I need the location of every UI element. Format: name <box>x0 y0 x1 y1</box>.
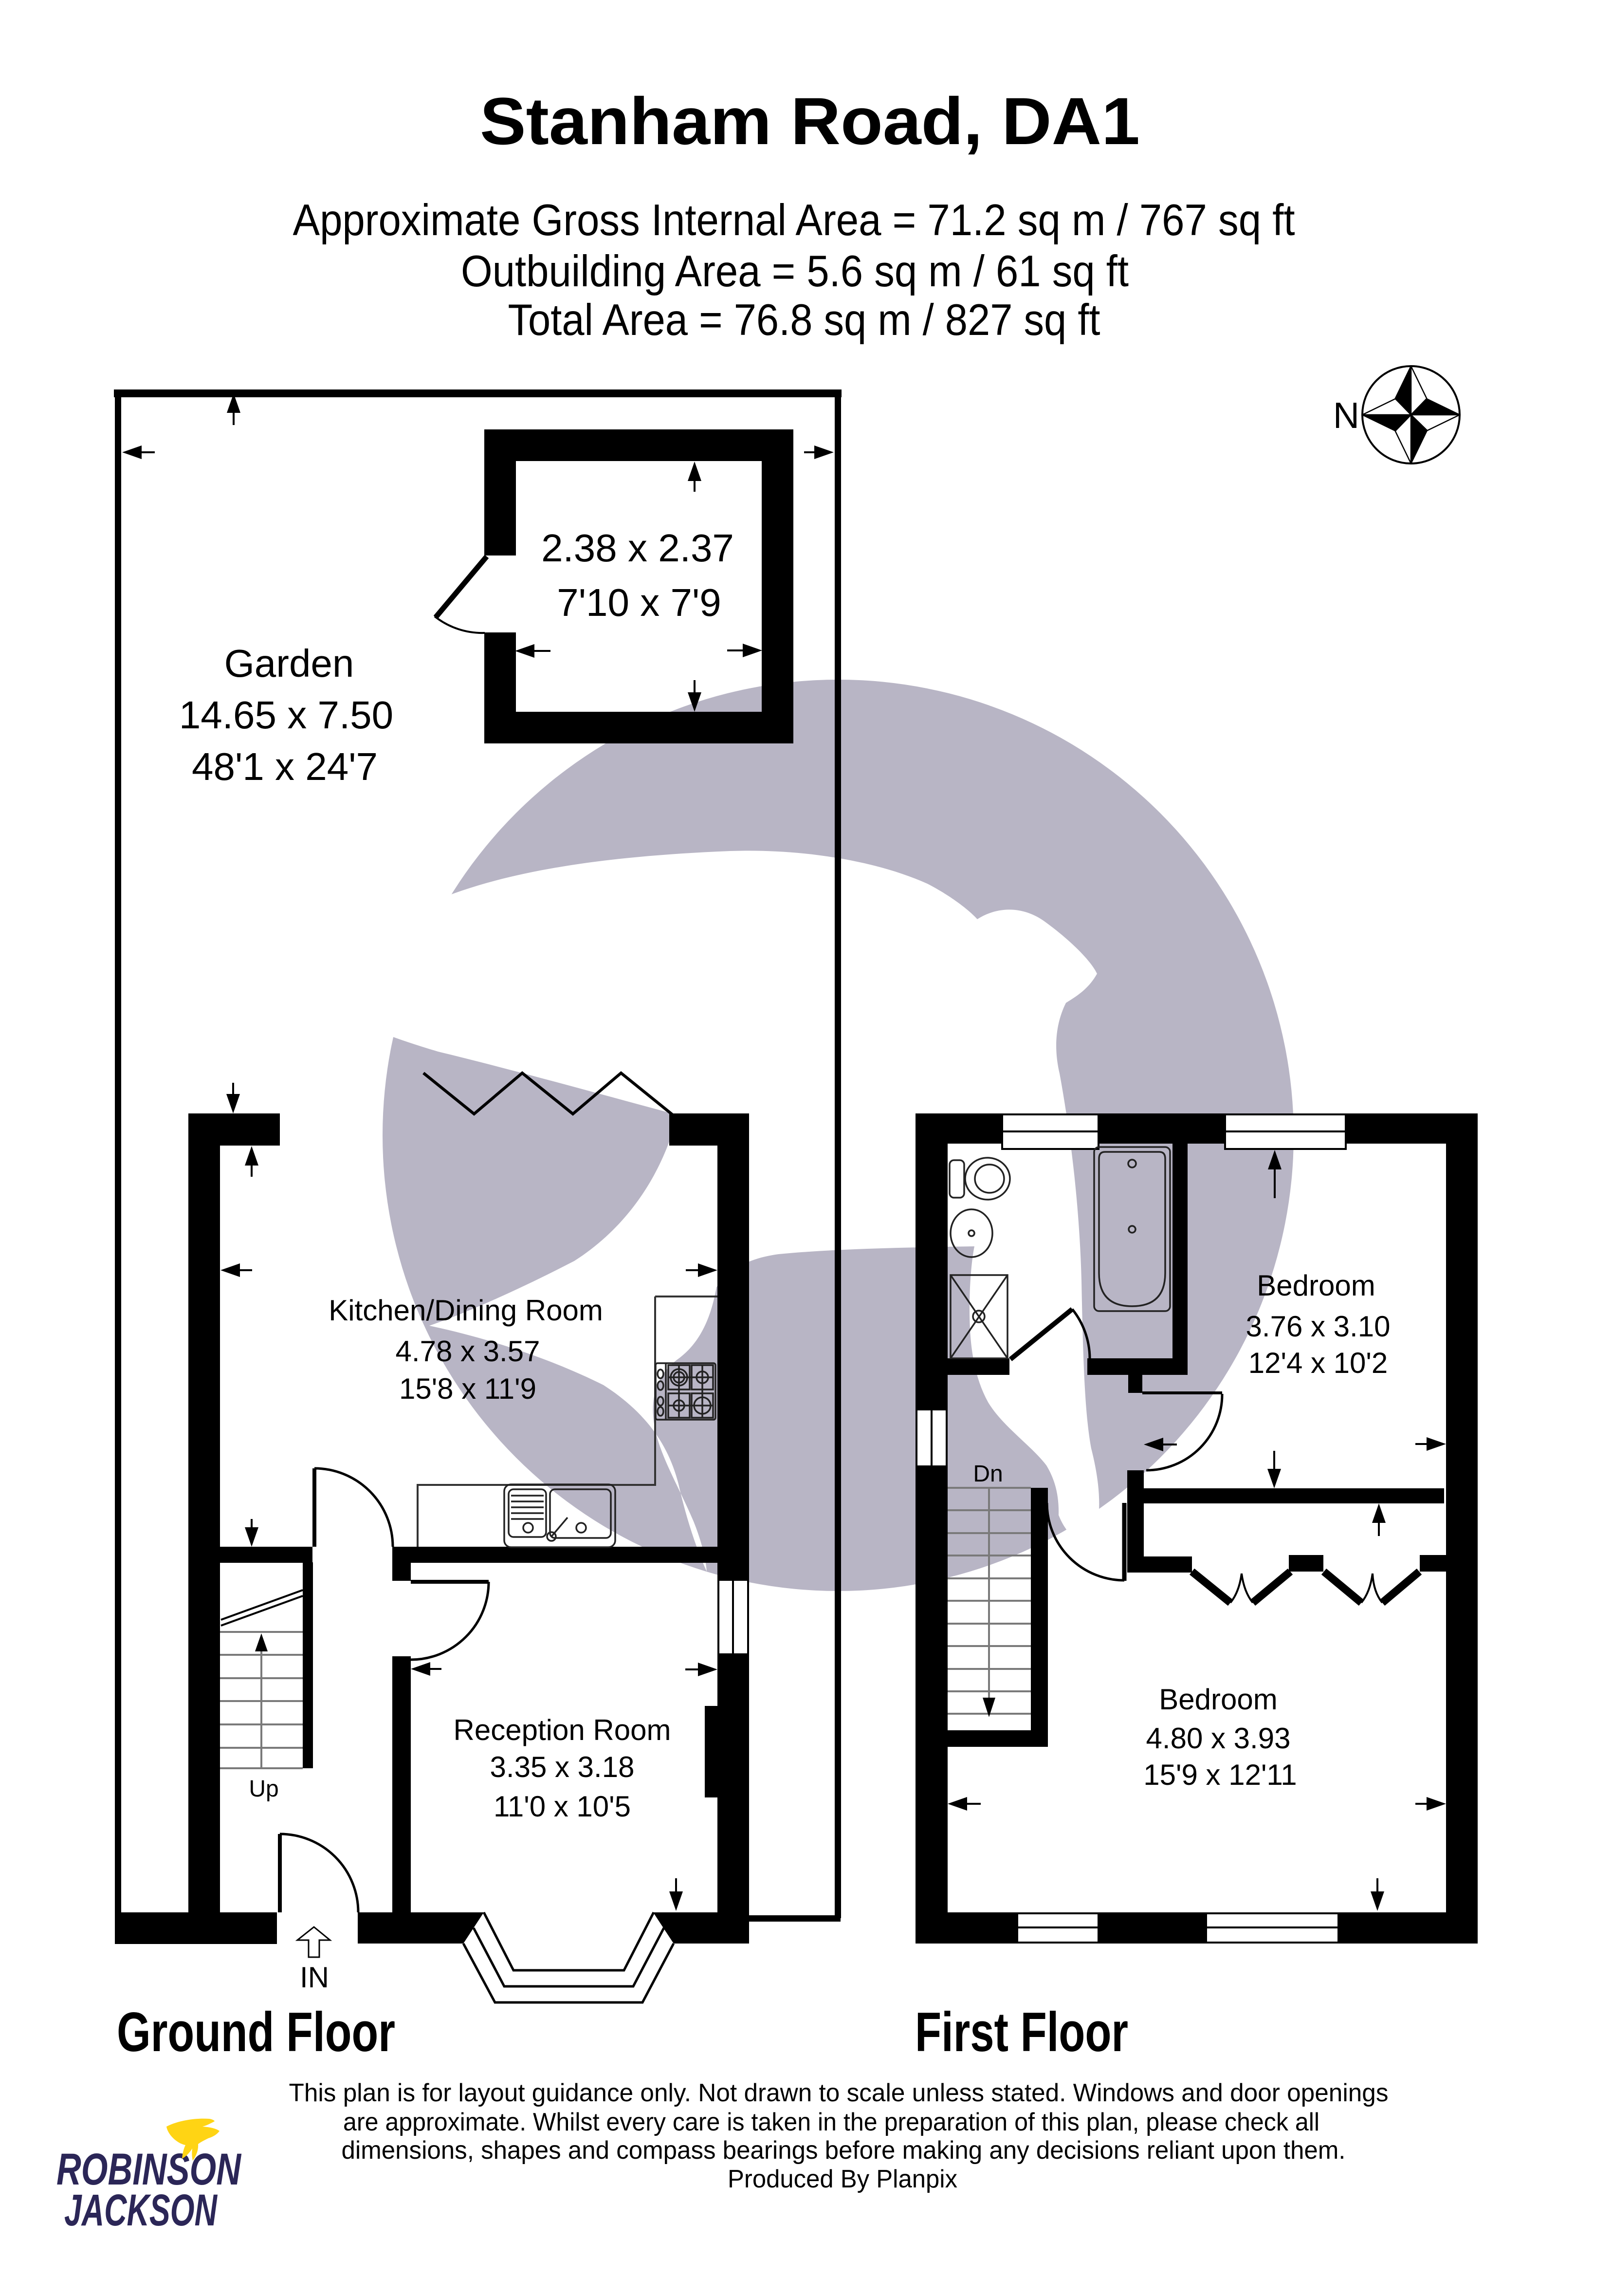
svg-text:This plan is for layout guidan: This plan is for layout guidance only. N… <box>289 2079 1389 2107</box>
svg-text:15'9 x 12'11: 15'9 x 12'11 <box>1143 1759 1297 1791</box>
svg-text:Bedroom: Bedroom <box>1257 1269 1375 1302</box>
svg-text:Kitchen/Dining Room: Kitchen/Dining Room <box>329 1294 603 1327</box>
svg-text:Garden: Garden <box>224 642 354 685</box>
svg-text:3.35 x 3.18: 3.35 x 3.18 <box>490 1751 635 1783</box>
svg-text:Up: Up <box>249 1776 278 1802</box>
svg-text:Total Area = 76.8 sq m / 827 s: Total Area = 76.8 sq m / 827 sq ft <box>508 296 1100 345</box>
svg-text:Outbuilding Area = 5.6 sq m /: Outbuilding Area = 5.6 sq m / 61 sq ft <box>461 247 1129 296</box>
svg-text:7'10 x 7'9: 7'10 x 7'9 <box>557 581 721 624</box>
svg-text:IN: IN <box>300 1961 329 1994</box>
svg-text:12'4 x 10'2: 12'4 x 10'2 <box>1248 1347 1388 1379</box>
svg-text:First Floor: First Floor <box>915 2001 1128 2063</box>
svg-text:Dn: Dn <box>973 1461 1003 1487</box>
svg-text:14.65 x 7.50: 14.65 x 7.50 <box>179 693 393 737</box>
svg-text:N: N <box>1333 395 1359 436</box>
svg-text:11'0 x 10'5: 11'0 x 10'5 <box>494 1790 631 1823</box>
svg-text:Reception Room: Reception Room <box>454 1714 671 1746</box>
svg-text:15'8 x 11'9: 15'8 x 11'9 <box>399 1372 536 1405</box>
svg-text:Produced By Planpix: Produced By Planpix <box>728 2165 957 2193</box>
svg-text:4.78 x 3.57: 4.78 x 3.57 <box>396 1335 540 1368</box>
svg-text:4.80 x 3.93: 4.80 x 3.93 <box>1146 1722 1291 1755</box>
svg-text:3.76 x 3.10: 3.76 x 3.10 <box>1246 1310 1391 1343</box>
svg-text:Approximate Gross Internal Are: Approximate Gross Internal Area = 71.2 s… <box>293 196 1295 245</box>
svg-text:Stanham Road, DA1: Stanham Road, DA1 <box>480 84 1140 159</box>
svg-text:Ground Floor: Ground Floor <box>117 2001 395 2063</box>
svg-text:dimensions, shapes and compass: dimensions, shapes and compass bearings … <box>342 2136 1346 2165</box>
svg-text:Bedroom: Bedroom <box>1159 1683 1277 1716</box>
svg-text:48'1 x 24'7: 48'1 x 24'7 <box>192 745 378 788</box>
svg-text:2.38 x 2.37: 2.38 x 2.37 <box>541 526 734 570</box>
svg-text:JACKSON: JACKSON <box>64 2185 218 2235</box>
svg-text:are approximate. Whilst every: are approximate. Whilst every care is ta… <box>343 2108 1319 2136</box>
